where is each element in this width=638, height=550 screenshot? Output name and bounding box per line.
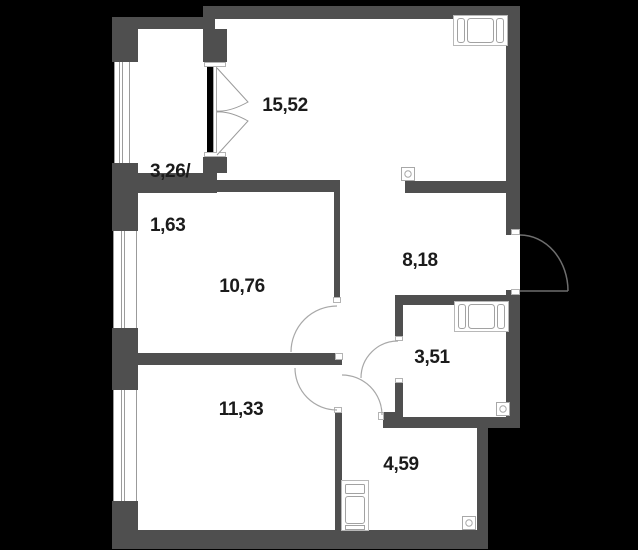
door-jamb — [378, 412, 384, 420]
room-label-bathroom: 3,51 — [384, 347, 480, 369]
balcony-area-line1: 3,26/ — [150, 163, 190, 181]
balcony-door-frame — [213, 67, 217, 152]
entry-door-swing-arc — [520, 235, 568, 291]
window-glass-line — [121, 390, 125, 501]
window-symbol — [113, 390, 137, 501]
room-label-kitchen: 4,59 — [353, 454, 449, 476]
door-jamb — [204, 152, 226, 157]
door-jamb — [395, 378, 403, 383]
door-jamb — [335, 353, 343, 360]
wall-segment — [112, 530, 488, 549]
door-jamb — [511, 289, 520, 295]
floor-plan: 3,26/ 1,63 15,52 10,76 8,18 3,51 11,33 4… — [0, 0, 638, 550]
window-symbol — [114, 62, 130, 163]
wall-segment — [203, 29, 227, 62]
window-glass-line — [121, 231, 125, 328]
wall-segment — [395, 295, 506, 305]
wall-segment — [477, 428, 488, 549]
balcony-area-line2: 1,63 — [150, 217, 190, 235]
door-jamb — [395, 336, 403, 341]
door-jamb — [333, 297, 341, 303]
floor-entry-gap — [506, 235, 520, 291]
wall-segment — [506, 290, 520, 428]
window-symbol — [113, 231, 137, 328]
room-label-bedroom2: 11,33 — [193, 399, 289, 421]
wall-segment — [405, 181, 506, 193]
door-jamb — [511, 229, 520, 235]
wall-segment — [112, 17, 138, 62]
room-label-balcony: 3,26/ 1,63 — [150, 127, 190, 271]
floor-bedroom2 — [136, 358, 342, 534]
wall-segment — [335, 413, 342, 530]
room-label-bedroom1: 10,76 — [194, 276, 290, 298]
window-glass-line — [119, 62, 123, 163]
room-label-hallway: 8,18 — [372, 250, 468, 272]
wall-segment — [334, 192, 340, 303]
floor-kitchen — [340, 418, 482, 534]
wall-segment — [383, 417, 520, 428]
door-jamb — [334, 407, 342, 413]
wall-segment — [506, 6, 520, 235]
wall-segment — [112, 328, 138, 390]
wall-segment — [138, 353, 342, 365]
wall-segment — [203, 6, 520, 19]
room-label-living: 15,52 — [237, 95, 333, 117]
wall-segment — [203, 157, 227, 173]
